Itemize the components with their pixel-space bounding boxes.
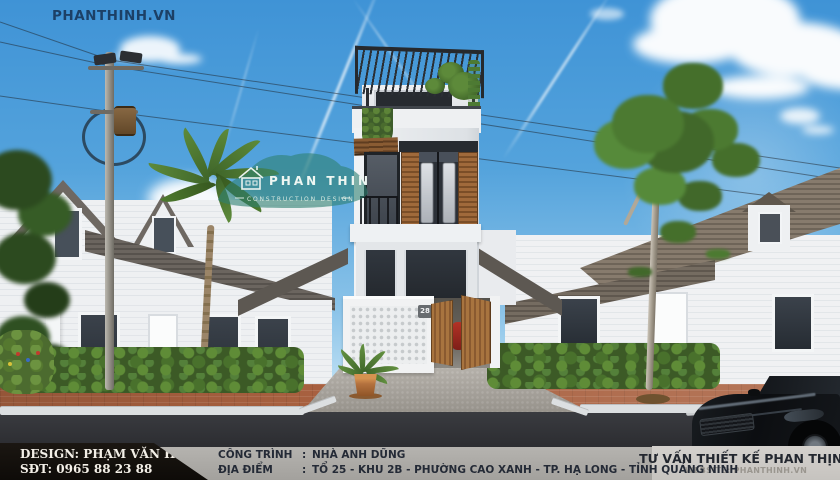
- floor-slab: [350, 224, 481, 242]
- right-house-dormer-window: [758, 212, 782, 244]
- window-lintel: [399, 141, 478, 152]
- window-mullion: [437, 152, 439, 224]
- designer-phone: SĐT: 0965 88 23 88: [20, 462, 208, 476]
- tree-foliage: [612, 95, 684, 153]
- pole-crossarm: [88, 66, 144, 70]
- wooden-gate-door-right: [461, 295, 491, 370]
- logo-subtitle: CONSTRUCTION DESIGN: [247, 196, 355, 203]
- architectural-render-image: 28 PHANTHINH.VN PHAN THINH CONSTRUCTION …: [0, 0, 840, 480]
- project-value: NHÀ ANH DŨNG: [312, 448, 405, 462]
- left-house-window: [152, 216, 176, 254]
- hedge: [22, 347, 304, 393]
- project-value: TỔ 25 - KHU 2B - PHƯỜNG CAO XANH - TP. H…: [312, 463, 738, 477]
- house-number-plate: 28: [418, 305, 432, 318]
- left-house-window: [52, 208, 82, 260]
- project-label: ĐỊA ĐIỂM: [218, 463, 302, 477]
- site-watermark-text: PHANTHINH.VN: [52, 8, 176, 24]
- project-colon: :: [302, 463, 312, 477]
- project-row: CÔNG TRÌNH : NHÀ ANH DŨNG: [218, 448, 738, 462]
- flower: [8, 362, 12, 366]
- flower: [26, 358, 30, 362]
- flower: [16, 352, 20, 356]
- utility-pole: [105, 52, 114, 390]
- pole-transformer: [114, 106, 136, 136]
- hedge: [487, 343, 720, 389]
- project-info: CÔNG TRÌNH : NHÀ ANH DŨNG ĐỊA ĐIỂM : TỔ …: [218, 448, 738, 477]
- project-label: CÔNG TRÌNH: [218, 448, 302, 462]
- project-row: ĐỊA ĐIỂM : TỔ 25 - KHU 2B - PHƯỜNG CAO X…: [218, 463, 738, 477]
- curb: [0, 406, 304, 415]
- rooftop-plant: [425, 78, 445, 94]
- curtain: [421, 163, 433, 223]
- flower: [36, 351, 40, 355]
- black-car: [692, 376, 840, 456]
- logo-title: PHAN THINH: [269, 174, 371, 188]
- wooden-gate-door-left: [431, 300, 453, 366]
- curtain: [443, 163, 455, 223]
- wood-shutter-right: [458, 152, 478, 226]
- car-mirror: [748, 389, 760, 396]
- project-colon: :: [302, 448, 312, 462]
- logo-watermark: PHAN THINH CONSTRUCTION DESIGN: [213, 148, 371, 220]
- wood-shutter-left: [401, 152, 421, 226]
- right-house-window: [772, 294, 814, 352]
- tree-base-dirt: [636, 394, 670, 404]
- gate-pillar: [490, 296, 500, 368]
